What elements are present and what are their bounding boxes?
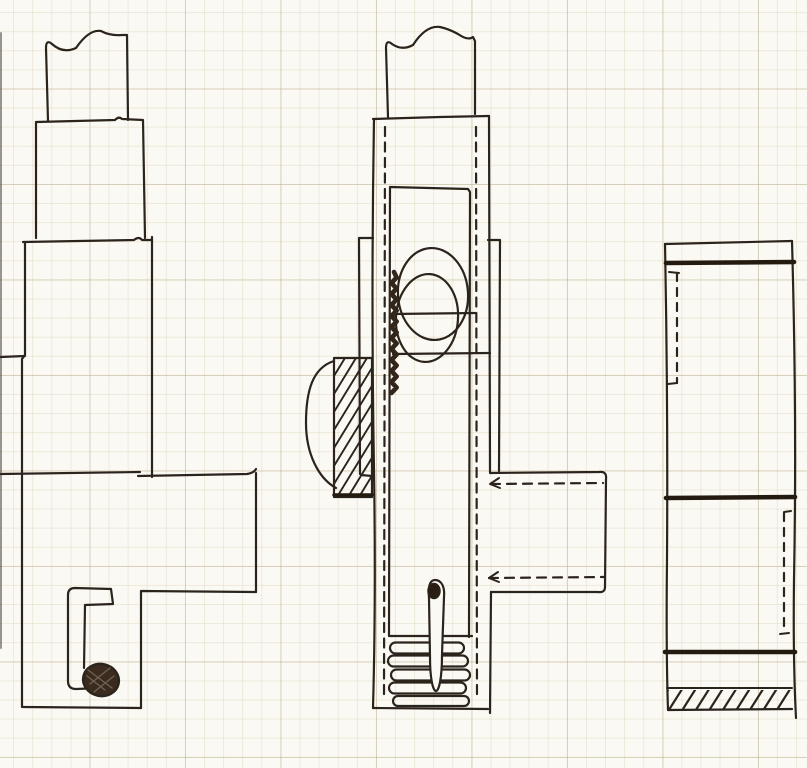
band-middle	[666, 497, 795, 498]
side-bump-arc	[306, 361, 336, 488]
cam-section-line-1	[392, 313, 476, 314]
upper-column-outline	[46, 31, 128, 121]
center-view	[249, 27, 606, 713]
block-3-left-edge	[22, 242, 25, 473]
spring-coil-1	[390, 643, 464, 654]
cam-section-line-2	[393, 353, 490, 354]
block-3-top	[23, 238, 152, 242]
spring-coil-5	[393, 696, 469, 706]
body-right-edge-lower	[490, 592, 491, 713]
hatch-band-fill	[656, 690, 790, 709]
hatch-block-fill	[249, 358, 455, 497]
body-top	[373, 116, 489, 119]
body-bottom	[373, 708, 488, 709]
outer-top	[665, 241, 792, 244]
block-2-outline	[36, 118, 145, 238]
side-arm-hidden-top	[491, 483, 603, 484]
hidden-line-left	[384, 127, 385, 700]
band-top	[666, 262, 794, 263]
hidden-line-right	[476, 127, 477, 700]
base-bottom	[23, 707, 141, 708]
hatch-block-step	[361, 475, 372, 476]
outer-bottom	[668, 709, 792, 710]
side-arm-hidden-bottom	[489, 577, 605, 578]
spring-coil-2	[388, 656, 468, 667]
body-right-edge-upper	[489, 116, 490, 472]
right-view	[656, 241, 796, 718]
upper-column-outline	[386, 27, 475, 117]
hidden-right-ticks	[780, 511, 791, 634]
side-arm-outline	[490, 472, 606, 592]
weld-scribble	[391, 272, 396, 393]
sketch-drawing	[0, 0, 807, 768]
spring-coil-4	[389, 683, 466, 694]
left-view	[0, 31, 256, 708]
left-step-tick	[0, 356, 25, 357]
hook-channel-inner	[84, 589, 113, 668]
base-top-line-right	[138, 469, 256, 476]
outer-right-edge	[792, 241, 796, 718]
base-step	[141, 591, 256, 708]
graph-paper-background	[0, 0, 807, 768]
outer-left-edge	[665, 244, 668, 710]
pin-head	[428, 584, 440, 599]
cam-lobe-upper	[395, 246, 471, 343]
inner-window	[389, 187, 472, 637]
